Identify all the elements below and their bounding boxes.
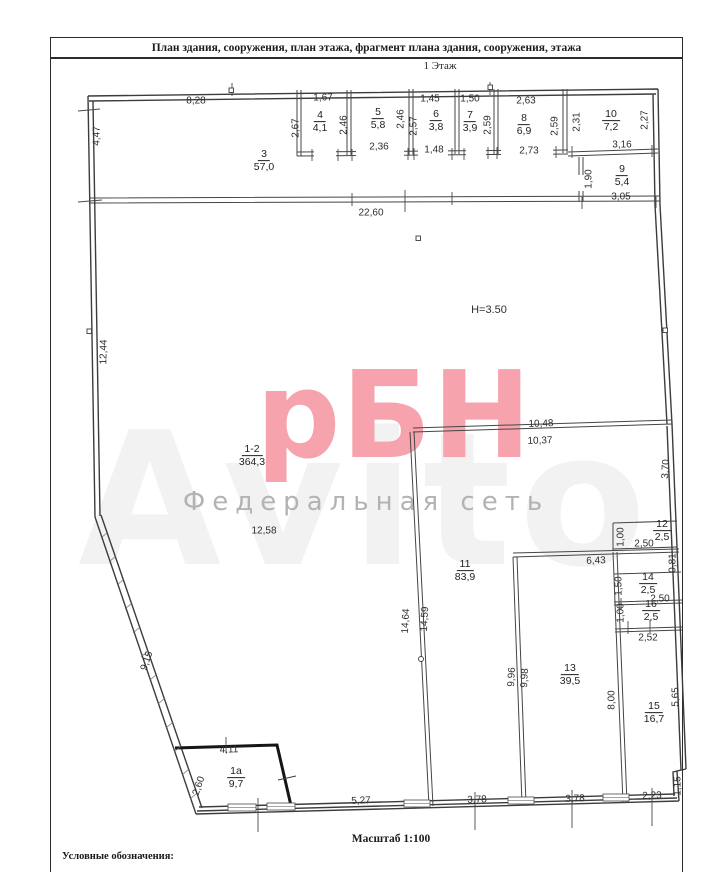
dimension-label: 2,59 [483, 115, 494, 134]
dimension-label: 12,58 [251, 526, 276, 537]
dimension-label: 3,70 [660, 459, 672, 479]
scale-label: Масштаб 1:100 [352, 833, 430, 845]
dimension-label: 2,63 [516, 96, 535, 107]
room-label: 1339,5 [560, 662, 580, 688]
room-label: 122,5 [653, 518, 671, 544]
dimension-label: 2,50 [634, 539, 653, 550]
room-label: 357,0 [254, 148, 274, 174]
room-label: 1а9,7 [227, 765, 245, 791]
dimension-label: 2,50 [650, 594, 669, 605]
dimension-label: 2,67 [291, 118, 302, 137]
dimension-label: 2,57 [409, 116, 420, 135]
dimension-label: 1,90 [584, 169, 595, 188]
room-label: 1-2364,3 [239, 443, 265, 469]
dimension-label: 5,65 [671, 687, 682, 706]
dimension-label: 3,78 [467, 794, 487, 806]
legend-label: Условные обозначения: [62, 851, 174, 862]
dimension-label: 2,46 [339, 115, 350, 134]
dimension-label: 12,44 [98, 339, 109, 364]
dimension-label: 6,43 [586, 555, 606, 567]
dimension-label: 2,46 [396, 109, 407, 128]
dimension-label: 22,60 [358, 208, 383, 219]
plan-labels: 357,044,155,863,873,986,9107,295,41-2364… [0, 0, 720, 872]
dimension-label: 3,05 [611, 192, 630, 203]
dimension-label: 8,28 [186, 96, 205, 107]
room-label: 55,8 [371, 106, 386, 132]
dimension-label: 2,36 [369, 142, 388, 153]
dimension-label: 1,50 [614, 576, 625, 595]
dimension-label: 14,64 [400, 608, 412, 634]
dimension-label: 2,27 [640, 110, 651, 129]
dimension-label: 2,73 [519, 146, 538, 157]
dimension-label: 10,48 [528, 418, 553, 430]
dimension-label: 1,67 [313, 93, 332, 104]
dimension-label: 0,81 [668, 553, 679, 572]
dimension-label: 1,15 [673, 776, 684, 795]
dimension-label: 1,00 [616, 603, 627, 622]
room-label: 63,8 [429, 108, 444, 134]
dimension-label: 10,37 [527, 435, 552, 447]
dimension-label: 1,50 [460, 94, 479, 105]
dimension-label: 5,27 [351, 795, 371, 807]
dimension-label: 1,48 [424, 145, 443, 156]
dimension-label: 1,00 [616, 527, 627, 546]
dimension-label: 9,98 [519, 668, 531, 688]
dimension-label: 3,16 [612, 140, 631, 151]
room-label: 95,4 [615, 163, 630, 189]
dimension-label: 2,31 [572, 112, 583, 131]
dimension-label: 4,11 [219, 744, 238, 756]
dimension-label: 14,59 [419, 606, 431, 632]
room-label: 73,9 [463, 109, 478, 135]
dimension-label: 2,52 [638, 633, 657, 644]
dimension-label: 8,00 [607, 690, 618, 709]
room-label: 44,1 [313, 109, 328, 135]
dimension-label: 9,96 [506, 667, 518, 687]
dimension-label: 1,45 [420, 94, 439, 105]
dimension-label: 2,23 [642, 790, 662, 802]
room-label: 107,2 [602, 108, 620, 134]
room-label: 86,9 [517, 112, 532, 138]
room-label: 1183,9 [455, 558, 475, 584]
dimension-label: 2,60 [191, 775, 208, 797]
dimension-label: 4,47 [91, 126, 102, 146]
dimension-label: H=3.50 [471, 304, 507, 316]
floor-plan-page: Avito рБН Федеральная сеть План здания, … [0, 0, 720, 872]
dimension-label: 9,15 [139, 650, 156, 672]
room-label: 1516,7 [644, 700, 664, 726]
dimension-label: 2,59 [550, 116, 561, 135]
dimension-label: 3,78 [565, 793, 585, 805]
